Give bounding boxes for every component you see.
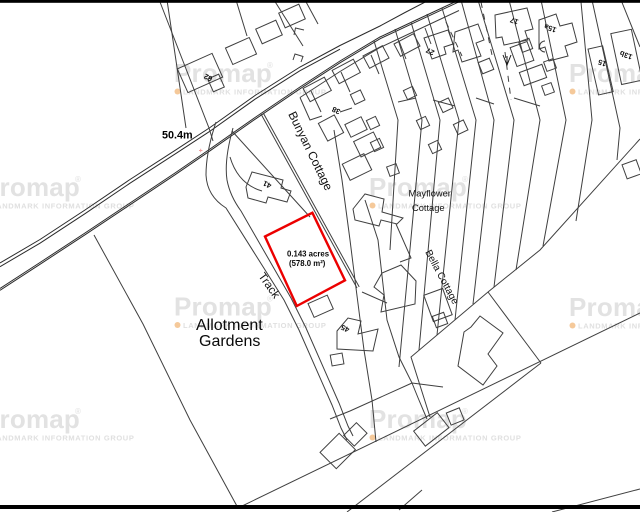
svg-text:Gardens: Gardens [199,333,260,350]
svg-text:Mayflower: Mayflower [409,189,451,199]
svg-text:(578.0 m²): (578.0 m²) [289,259,326,268]
svg-text:®: ® [267,61,273,70]
svg-text:50.4m: 50.4m [162,130,193,142]
svg-text:Allotment: Allotment [196,317,263,334]
svg-text:0.143 acres: 0.143 acres [287,250,330,259]
svg-text:Cottage: Cottage [412,203,445,213]
